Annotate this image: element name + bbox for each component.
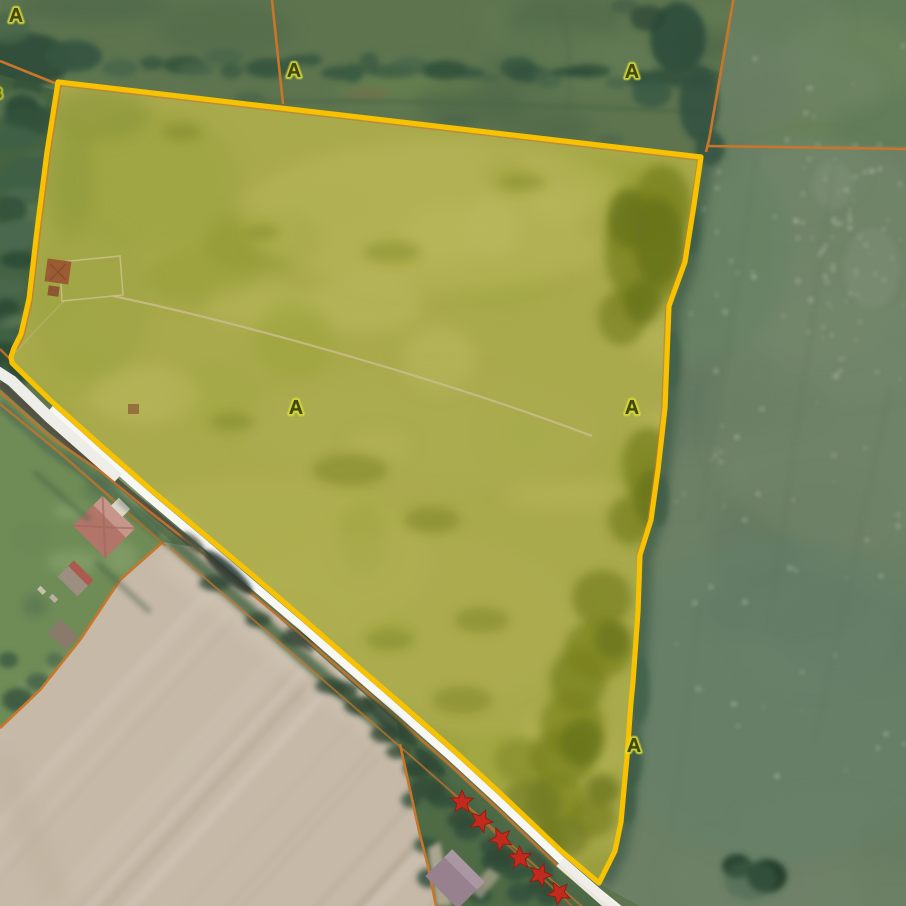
svg-text:A: A xyxy=(9,5,23,27)
svg-text:DB: DB xyxy=(0,84,3,103)
svg-text:A: A xyxy=(627,735,641,757)
svg-text:A: A xyxy=(287,60,301,82)
svg-text:A: A xyxy=(625,397,639,419)
svg-text:A: A xyxy=(625,61,639,83)
svg-text:A: A xyxy=(289,397,303,419)
